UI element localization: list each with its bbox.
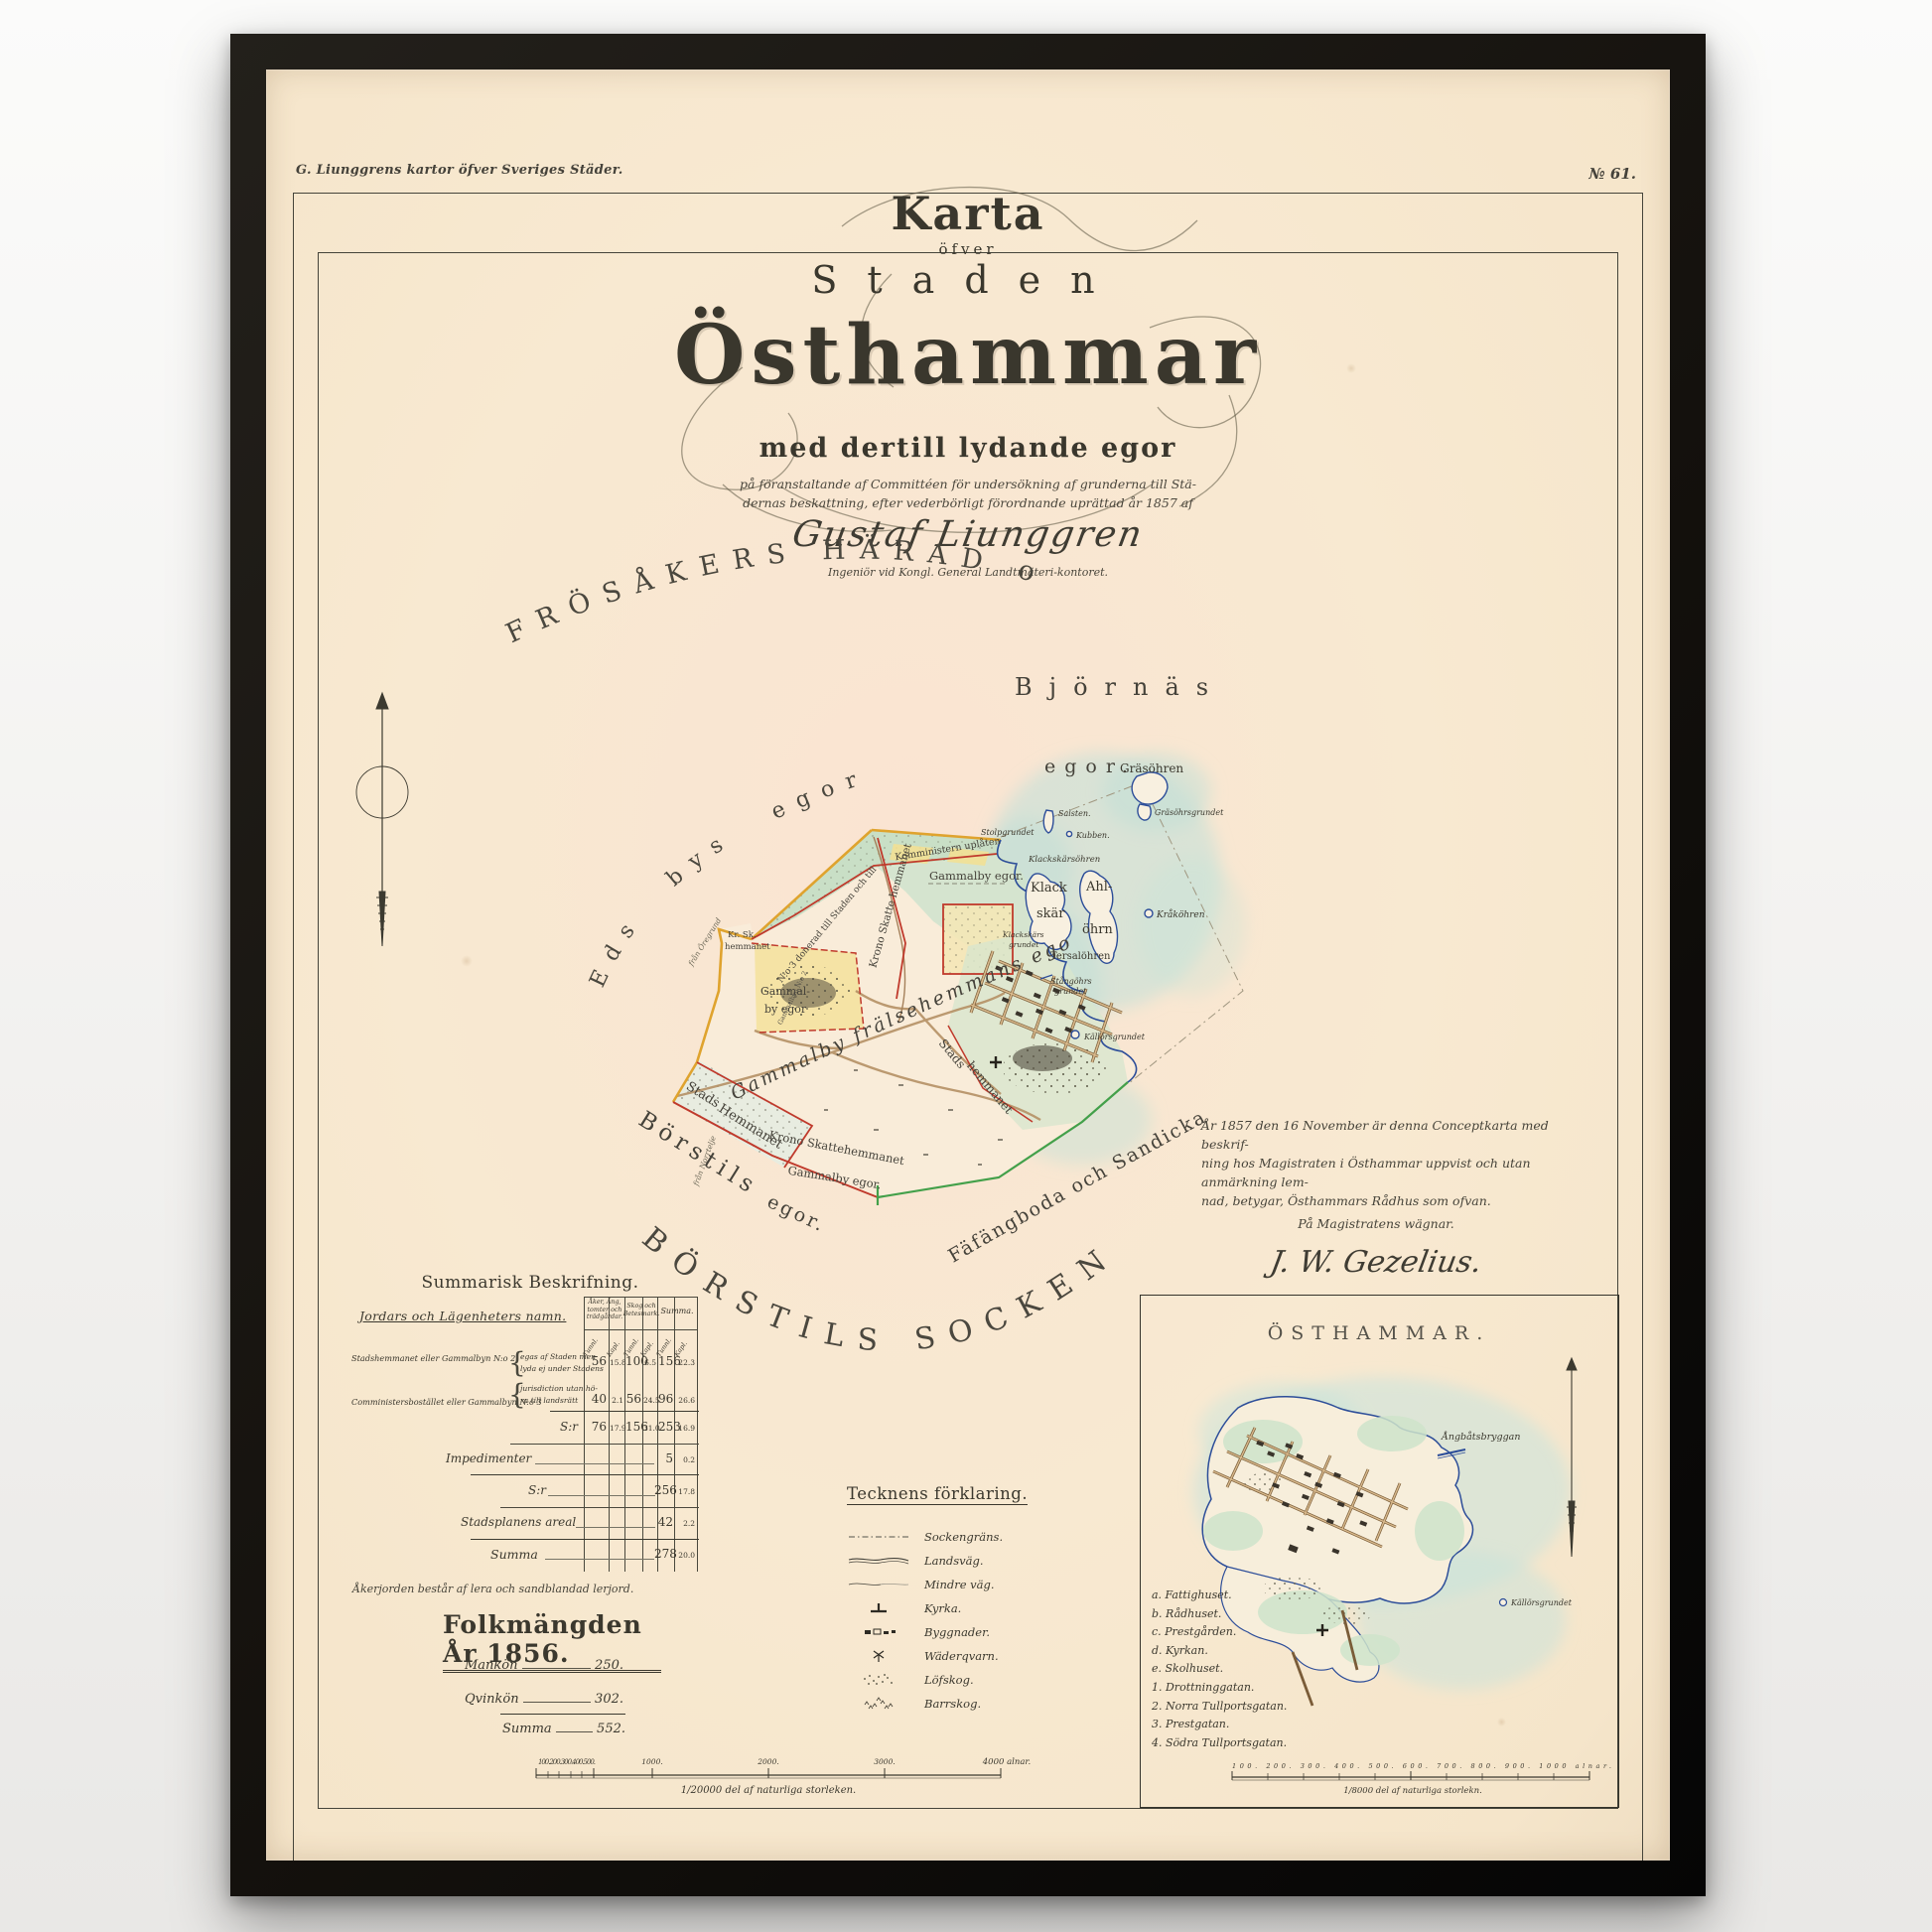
s1c2: 17.9: [610, 1424, 623, 1433]
sumc5: 278: [654, 1547, 673, 1561]
legend-label-barrskog: Barrskog.: [924, 1697, 981, 1711]
r2c2: 2.1: [610, 1396, 623, 1405]
label-stolpgrundet: Stolpgrundet: [981, 828, 1035, 837]
landsvag-icon: [847, 1554, 910, 1568]
certificate-block: År 1857 den 16 November är denna Concept…: [1201, 1116, 1551, 1280]
inset-scale-subticks: 100. 200. 300. 400. 500. 600. 700. 800. …: [1232, 1762, 1611, 1770]
impc5: 5: [658, 1451, 673, 1465]
brace-2: {: [508, 1378, 526, 1411]
title-karta: Karta: [266, 187, 1670, 240]
scale-4000: 4000 alnar.: [982, 1757, 1032, 1767]
title-subtitle: med dertill lydande egor: [266, 433, 1670, 464]
inset-legend-2: 2. Norra Tullportsgatan.: [1152, 1698, 1287, 1717]
inset-pier-label: Ångbåtsbryggan: [1441, 1431, 1520, 1443]
label-kubben: Kubben.: [1075, 831, 1110, 840]
mindre-vag-icon: [847, 1578, 910, 1591]
label-gammalby-egor-north: Gammalby egor.: [929, 869, 1024, 883]
r2c6: 26.6: [675, 1396, 695, 1405]
s2c5: 256: [654, 1483, 673, 1497]
symbol-legend: Tecknens förklaring. Sockengräns. Landsv…: [847, 1484, 1065, 1505]
brace-1: {: [508, 1346, 526, 1379]
title-osthammar: Östhammar: [266, 308, 1670, 403]
r1c4: 6.5: [643, 1358, 656, 1367]
legend-label-mindre-vag: Mindre väg.: [924, 1578, 995, 1591]
vaderqvarn-icon: [847, 1649, 910, 1663]
s1c4: 31.0: [643, 1424, 656, 1433]
label-bjornas: Björnäs: [1015, 673, 1225, 701]
series-title: G. Liunggrens kartor öfver Sveriges Städ…: [296, 163, 623, 178]
r2c3: 56: [625, 1392, 641, 1406]
label-fran-oregrund: från Öregrund: [686, 916, 723, 968]
scale-2000: 2000.: [757, 1757, 778, 1766]
label-klackskars-grund1: Klackskärs: [1002, 930, 1044, 939]
label-kr-sk-2: hemmanet: [725, 942, 770, 952]
label-bjornas-egor: egor.: [1044, 756, 1137, 777]
barrskog-icon: [847, 1697, 910, 1711]
title-ofver: öfver: [266, 240, 1670, 258]
map-sheet-paper: G. Liunggrens kartor öfver Sveriges Städ…: [266, 69, 1670, 1861]
spc6: 2.2: [675, 1519, 695, 1528]
impedimenter-label: Impedimenter: [446, 1451, 531, 1465]
qvinkon-value: 302.: [595, 1692, 623, 1707]
r1c6: 22.3: [675, 1358, 695, 1367]
inset-compass-icon: [1567, 1358, 1577, 1557]
legend-label-byggnader: Byggnader.: [924, 1625, 990, 1639]
summary-table: Summarisk Beskrifning. Åker, Äng, tomter…: [351, 1273, 705, 1581]
note-line1: egas af Staden men: [520, 1352, 596, 1361]
col-group-summa: Summa.: [657, 1307, 697, 1315]
sockengrans-icon: [847, 1530, 910, 1544]
subtotal-label: S:r: [560, 1420, 578, 1434]
s1c5: 253: [658, 1420, 673, 1434]
summary-table-title: Summarisk Beskrifning.: [411, 1273, 649, 1293]
inset-legend-1: 1. Drottninggatan.: [1152, 1679, 1287, 1698]
gezelius-signature: J. W. Gezelius.: [1198, 1245, 1554, 1280]
r1c1: 56: [586, 1354, 607, 1368]
r2c1: 40: [586, 1392, 607, 1406]
certificate-line4: På Magistratens wägnar.: [1201, 1214, 1551, 1233]
label-krakohren: Kråköhren: [1156, 908, 1205, 920]
inset-legend-b: b. Rådhuset.: [1152, 1605, 1287, 1624]
legend-label-lofskog: Löfskog.: [924, 1673, 974, 1687]
population-summa-value: 552.: [597, 1722, 625, 1736]
col-group-skog-2: Betesmark.: [621, 1311, 661, 1318]
inset-legend-d: d. Kyrkan.: [1152, 1642, 1287, 1661]
picture-frame: G. Liunggrens kartor öfver Sveriges Städ…: [230, 34, 1706, 1896]
foxing-spot: [1346, 363, 1356, 373]
legend-label-kyrka: Kyrka.: [924, 1601, 961, 1615]
title-staden: Staden: [266, 258, 1670, 302]
label-ahl: Ahl-: [1085, 880, 1112, 895]
inset-kallorsgrundet-label: Källörsgrundet: [1510, 1598, 1573, 1607]
main-scale-bar: 100.200.300.400.500. 1000. 2000. 3000. 4…: [532, 1751, 1029, 1799]
kyrka-icon: [847, 1601, 910, 1615]
lofskog-icon: [847, 1673, 910, 1687]
scale-subticks: 100.200.300.400.500.: [538, 1758, 596, 1766]
r1c3: 100: [625, 1354, 641, 1368]
col-group-skog-1: Skog och: [621, 1303, 661, 1311]
legend-label-vaderqvarn: Wäderqvarn.: [924, 1649, 999, 1663]
impc6: 0.2: [675, 1455, 695, 1464]
s1c6: 16.9: [675, 1424, 695, 1433]
s1c1: 76: [586, 1420, 607, 1434]
name-col-header: Jordars och Lägenheters namn.: [359, 1309, 566, 1323]
legend-label-landsvag: Landsväg.: [924, 1554, 984, 1568]
scale-caption: 1/20000 del af naturliga storleken.: [681, 1785, 857, 1796]
inset-scale-caption: 1/8000 del af naturliga storlekn.: [1343, 1786, 1482, 1796]
legend-title: Tecknens förklaring.: [847, 1484, 1028, 1505]
inset-legend-c: c. Prestgården.: [1152, 1623, 1287, 1642]
subtotal2-label: S:r: [528, 1483, 546, 1497]
byggnader-icon: [847, 1625, 910, 1639]
scale-1000: 1000.: [641, 1757, 662, 1766]
r1c5: 156: [658, 1354, 673, 1368]
scale-3000: 3000.: [874, 1757, 895, 1766]
mankon-value: 250.: [595, 1658, 623, 1673]
inset-legend-3: 3. Prestgatan.: [1152, 1716, 1287, 1734]
r2c5: 96: [658, 1392, 673, 1406]
label-kallorsgrundet: Källörsgrundet: [1083, 1033, 1146, 1041]
sumc6: 20.0: [675, 1551, 695, 1560]
table-footnote: Åkerjorden består af lera och sandblanda…: [352, 1583, 633, 1595]
s1c3: 156: [625, 1420, 641, 1434]
population-block: Folkmängden År 1856. Mankön 250. Qvinkön…: [443, 1610, 661, 1673]
compass-needle-icon: [356, 693, 408, 946]
label-klackskarsohren: Klackskärsöhren: [1028, 855, 1100, 865]
label-skar: skär: [1036, 906, 1065, 921]
inset-legend-4: 4. Södra Tullportsgatan.: [1152, 1734, 1287, 1753]
label-grasohrsgrundet: Gräsöhrsgrundet: [1155, 808, 1224, 817]
label-ohrn: öhrn: [1082, 922, 1113, 937]
r1c2: 15.8: [610, 1358, 623, 1367]
label-klack: Klack: [1031, 881, 1067, 896]
s2c6: 17.8: [675, 1487, 695, 1496]
label-borstils-egor: egor.: [763, 1190, 829, 1237]
inset-kallorsgrundet-island: [1500, 1599, 1507, 1606]
population-summa-label: Summa: [502, 1722, 552, 1736]
inset-legend-e: e. Skolhuset.: [1152, 1660, 1287, 1679]
spc5: 42: [654, 1515, 673, 1529]
label-stangohrs-grundet: grundet: [1054, 987, 1087, 996]
certificate-line1: År 1857 den 16 November är denna Concept…: [1201, 1116, 1551, 1154]
r2c4: 24.5: [643, 1396, 656, 1405]
inset-legend-a: a. Fattighuset.: [1152, 1587, 1287, 1605]
legend-label-sockengrans: Sockengräns.: [924, 1530, 1003, 1544]
label-stangohrs: Stångöhrs: [1050, 977, 1092, 986]
mankon-label: Mankön: [465, 1658, 518, 1673]
certificate-line2: ning hos Magistraten i Östhammar uppvist…: [1201, 1154, 1551, 1191]
inset-title: ÖSTHAMMAR.: [1140, 1322, 1618, 1344]
inset-legend: a. Fattighuset. b. Rådhuset. c. Prestgår…: [1152, 1587, 1287, 1752]
unit-kapl-1: Kapl.: [605, 1339, 621, 1358]
inset-scale-bar: 100. 200. 300. 400. 500. 600. 700. 800. …: [1224, 1757, 1616, 1797]
stadsplan-label: Stadsplanens areal: [461, 1515, 576, 1529]
note-line4: ra till landsrätt: [520, 1396, 578, 1405]
qvinkon-label: Qvinkön: [465, 1692, 519, 1707]
label-kr-sk-1: Kr. Sk.: [728, 930, 757, 940]
label-salsten: Salsten.: [1058, 809, 1091, 818]
dedication-line1: på föranstaltande af Committéen för unde…: [266, 477, 1670, 491]
table-summa-label: Summa: [490, 1547, 538, 1562]
plate-number: № 61.: [1519, 165, 1636, 183]
certificate-line3: nad, betygar, Östhammars Rådhus som ofva…: [1201, 1191, 1551, 1210]
label-gammalby-village-1: Gammal-: [760, 985, 810, 998]
